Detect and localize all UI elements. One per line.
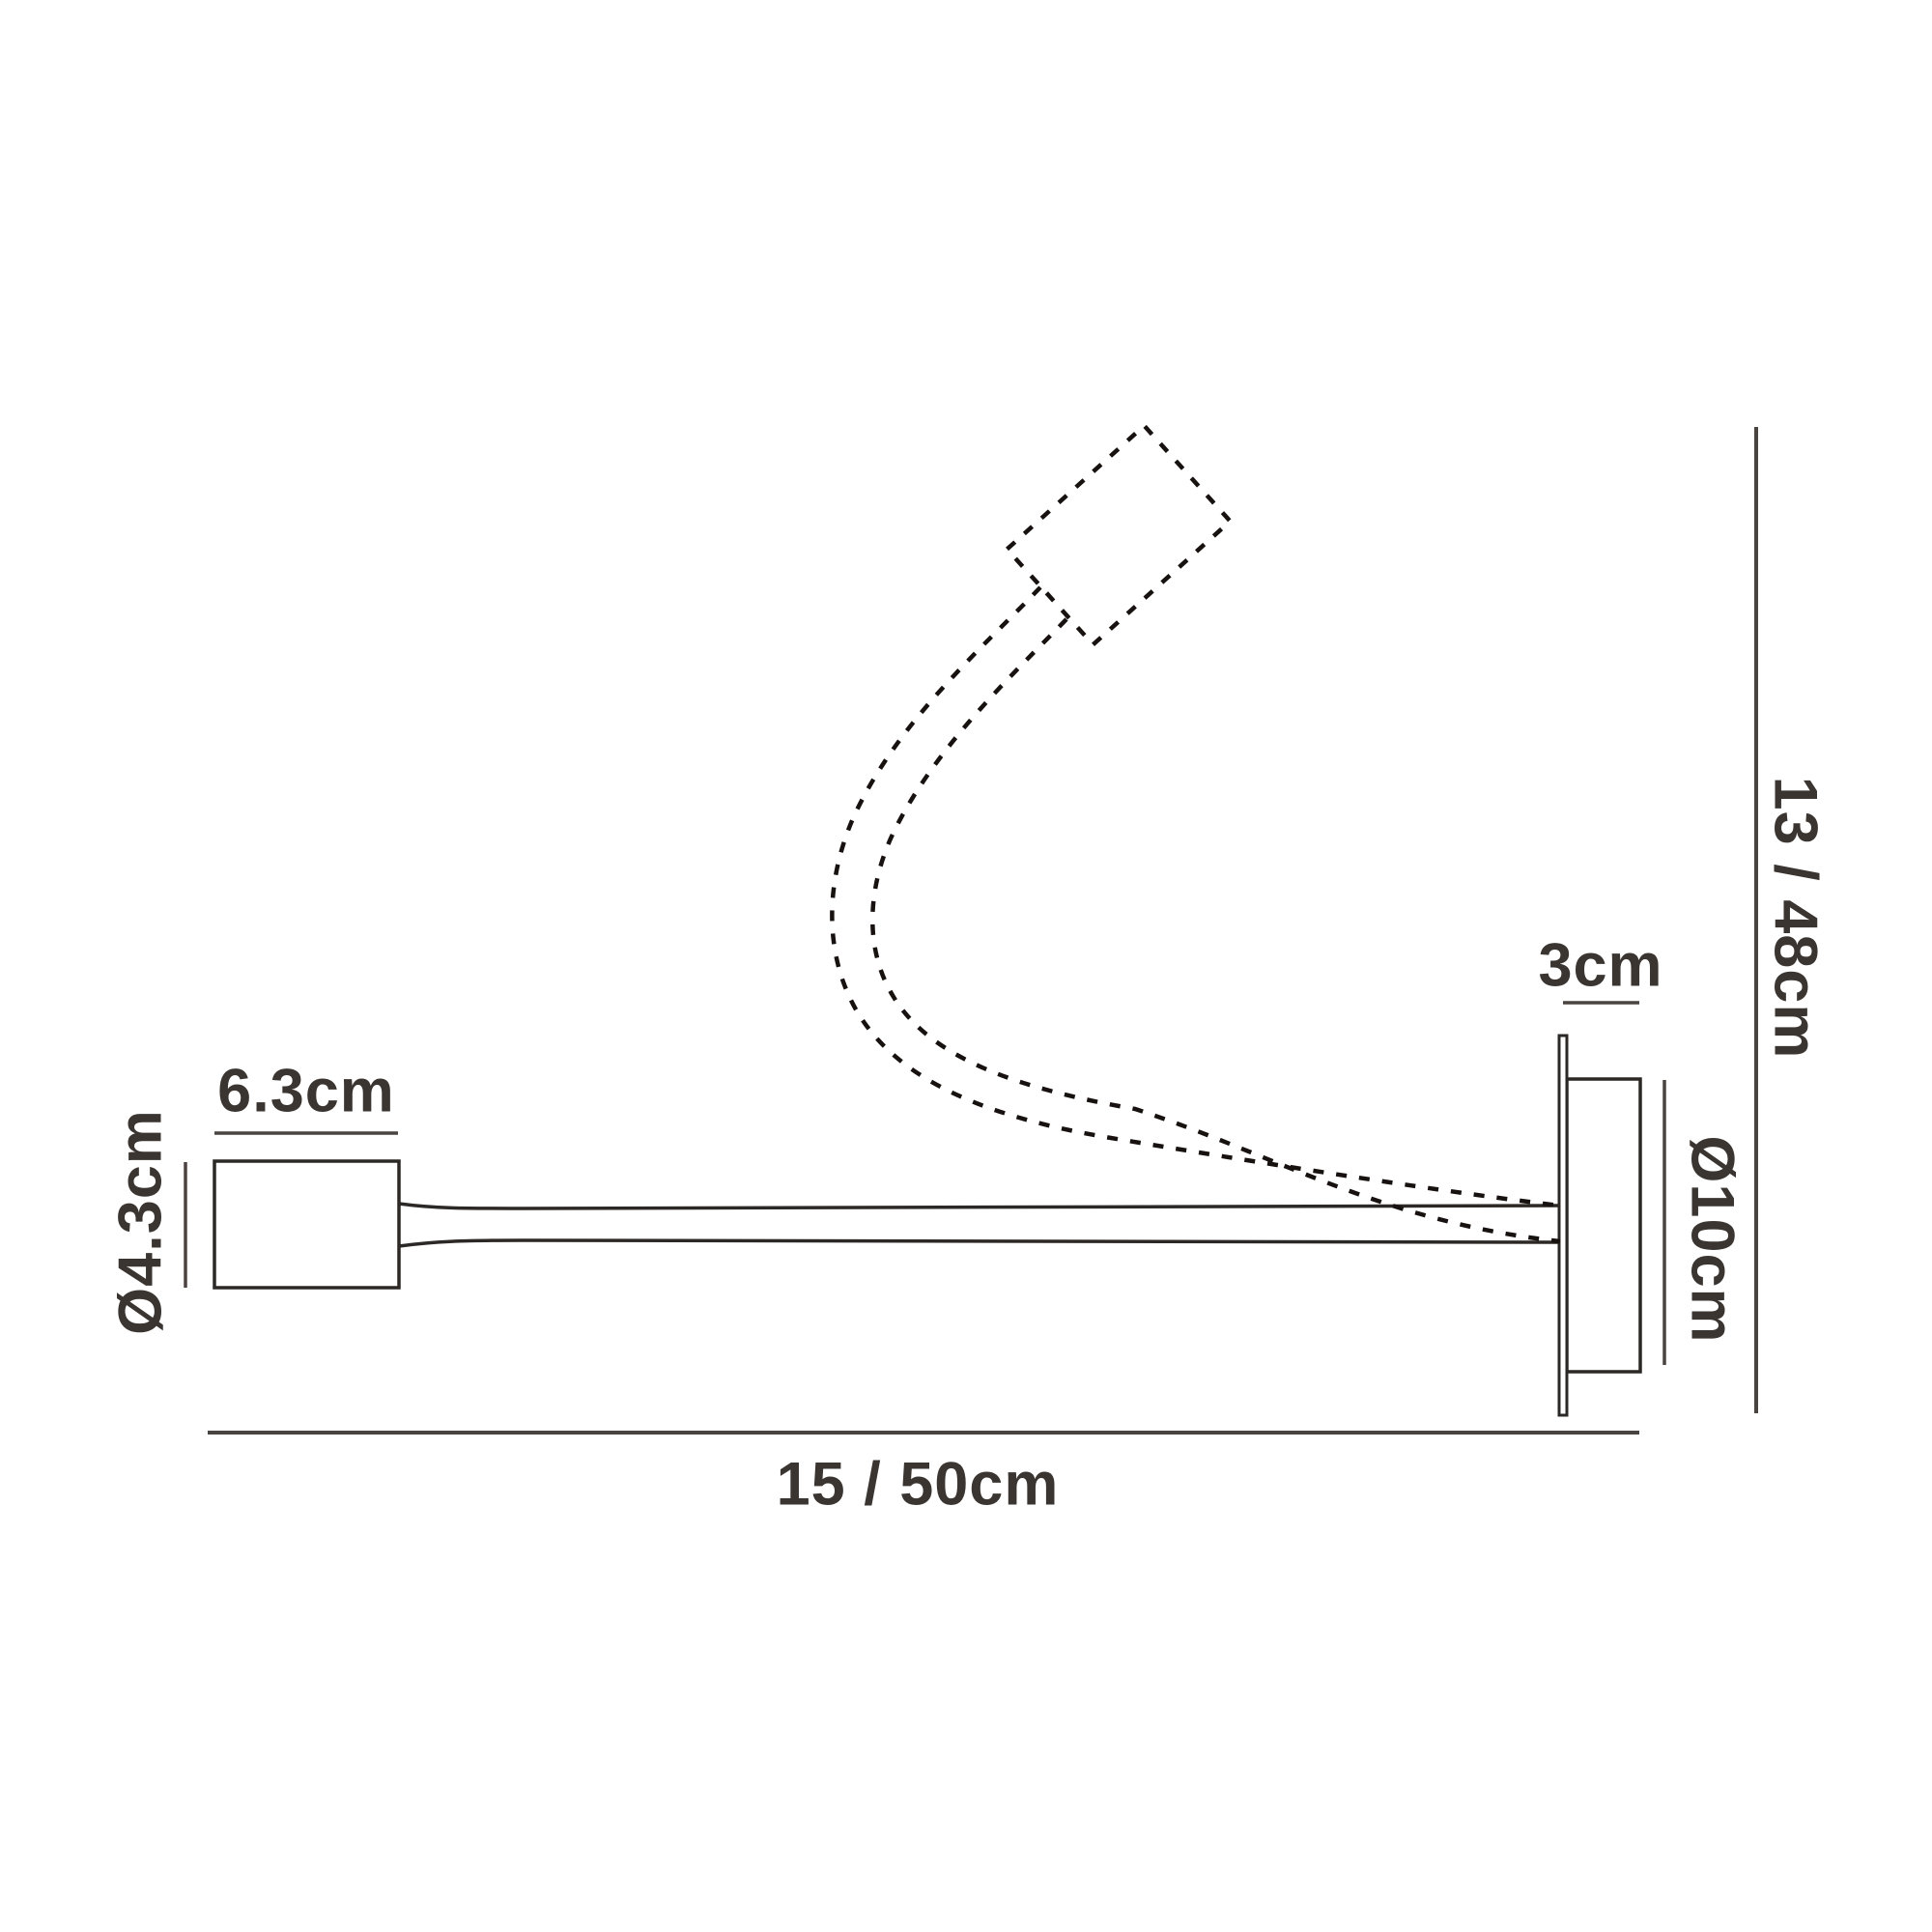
dim-label-head-width: 6.3cm (217, 1062, 395, 1122)
mount-cylinder-outline (1567, 1079, 1640, 1372)
dim-label-head-diameter: Ø4.3cm (111, 1109, 172, 1335)
lamp-solid-view (214, 1036, 1640, 1415)
wall-plate-outline (1559, 1036, 1567, 1415)
dim-label-backplate-diameter: Ø10cm (1682, 1135, 1743, 1343)
dimension-lines (185, 427, 1756, 1433)
dim-label-width-range: 15 / 50cm (777, 1455, 1060, 1516)
raised-head-dashed-outline (1008, 426, 1231, 645)
flex-arm-bottom-edge (399, 1240, 1560, 1246)
lamp-head-outline (214, 1161, 399, 1288)
technical-drawing-canvas: 6.3cm Ø4.3cm 3cm Ø10cm 13 / 48cm 15 / 50… (0, 0, 1932, 1932)
raised-arm-inner-dotted-curve (872, 619, 1560, 1241)
dim-label-mount-depth: 3cm (1538, 936, 1662, 997)
raised-arm-outer-dotted-curve (832, 587, 1560, 1206)
lamp-raised-position-dashed (832, 426, 1560, 1241)
dim-label-height-range: 13 / 48cm (1765, 777, 1826, 1060)
flex-arm-top-edge (399, 1204, 1560, 1208)
